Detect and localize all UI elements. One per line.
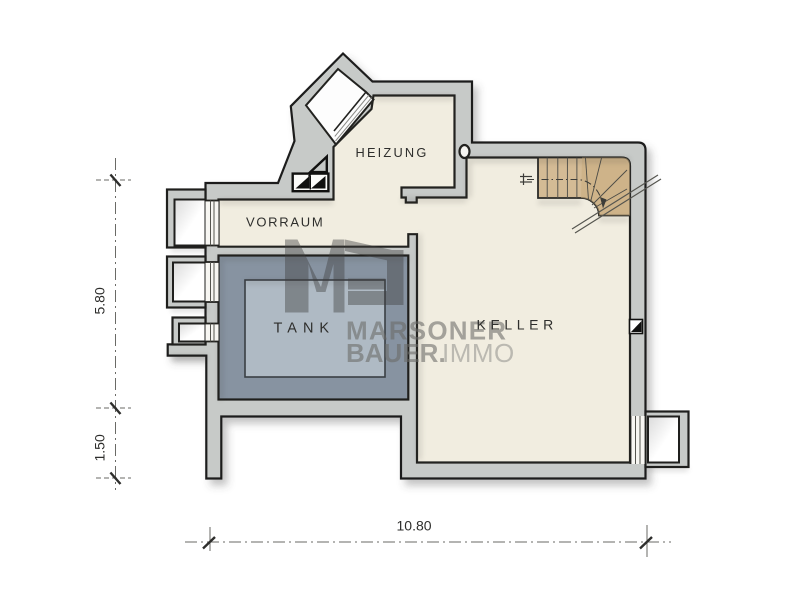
svg-text:BAUER.: BAUER. bbox=[346, 338, 446, 368]
svg-text:1.50: 1.50 bbox=[92, 434, 108, 461]
svg-text:10.80: 10.80 bbox=[397, 518, 432, 534]
svg-text:TANK: TANK bbox=[274, 321, 336, 337]
svg-text:VORRAUM: VORRAUM bbox=[246, 215, 324, 230]
svg-text:HEIZUNG: HEIZUNG bbox=[356, 145, 429, 160]
svg-text:IMMO: IMMO bbox=[442, 338, 515, 368]
svg-text:KELLER: KELLER bbox=[477, 317, 558, 333]
svg-text:5.80: 5.80 bbox=[92, 287, 108, 314]
